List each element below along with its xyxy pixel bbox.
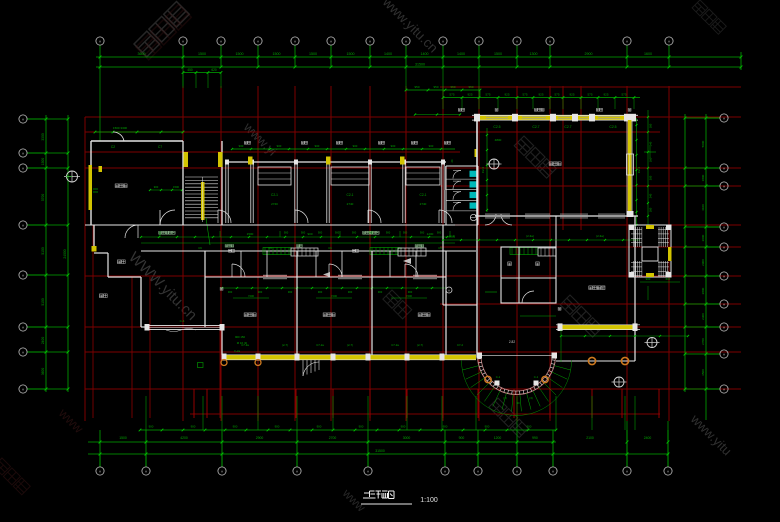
svg-text:C2: C2 xyxy=(111,145,115,149)
svg-text:600: 600 xyxy=(666,277,671,281)
svg-text:C-4: C-4 xyxy=(180,319,185,323)
svg-text:950: 950 xyxy=(468,85,473,89)
svg-text:C7-2: C7-2 xyxy=(457,343,464,347)
svg-text:900: 900 xyxy=(369,231,374,235)
svg-text:300: 300 xyxy=(649,175,653,180)
svg-text:900: 900 xyxy=(646,277,651,281)
svg-text:31500: 31500 xyxy=(415,63,425,67)
svg-text:2400: 2400 xyxy=(644,436,652,440)
svg-text:575: 575 xyxy=(522,93,527,97)
svg-text:1500: 1500 xyxy=(494,52,502,56)
svg-text:1500: 1500 xyxy=(119,436,127,440)
svg-text:A: A xyxy=(448,289,450,293)
svg-text:900: 900 xyxy=(408,290,413,294)
svg-text:1500: 1500 xyxy=(247,232,254,236)
svg-text:(3): (3) xyxy=(529,396,532,400)
svg-text:240: 240 xyxy=(649,141,653,146)
svg-text:900: 900 xyxy=(403,231,408,235)
svg-text:900: 900 xyxy=(527,425,532,429)
svg-text:1500: 1500 xyxy=(273,52,281,56)
svg-text:2700: 2700 xyxy=(701,338,705,345)
svg-text:(2-7): (2-7) xyxy=(347,343,353,347)
svg-text:900: 900 xyxy=(386,231,391,235)
svg-text:900: 900 xyxy=(401,425,406,429)
svg-text:1500: 1500 xyxy=(41,158,45,166)
svg-text:(2-3a): (2-3a) xyxy=(526,234,534,238)
svg-text:C2.6: C2.6 xyxy=(637,167,641,174)
svg-text:C2-1: C2-1 xyxy=(271,193,278,197)
svg-text:2400: 2400 xyxy=(41,337,45,345)
svg-text:1800: 1800 xyxy=(701,174,705,181)
svg-text:2700: 2700 xyxy=(329,436,337,440)
svg-text:160: 160 xyxy=(649,157,653,162)
svg-text:2740: 2740 xyxy=(420,202,427,206)
svg-text:C-2a: C-2a xyxy=(234,349,241,353)
svg-text:575: 575 xyxy=(587,93,592,97)
svg-text:925: 925 xyxy=(504,93,509,97)
svg-text:900: 900 xyxy=(348,290,353,294)
svg-text:925: 925 xyxy=(569,93,574,97)
svg-text:C6: C6 xyxy=(328,246,332,250)
svg-text:1400: 1400 xyxy=(384,52,392,56)
svg-text:3000: 3000 xyxy=(403,436,411,440)
svg-text:900: 900 xyxy=(301,231,306,235)
svg-text:925: 925 xyxy=(538,93,543,97)
svg-text:2000: 2000 xyxy=(701,234,705,241)
svg-text:7200: 7200 xyxy=(406,294,412,298)
svg-text:900: 900 xyxy=(378,290,383,294)
svg-text:C7-2a: C7-2a xyxy=(316,343,324,347)
svg-text:1600: 1600 xyxy=(644,52,652,56)
svg-text:C2-1: C2-1 xyxy=(347,193,354,197)
svg-text:900: 900 xyxy=(335,231,340,235)
svg-text:900: 900 xyxy=(318,290,323,294)
svg-text:1200: 1200 xyxy=(427,232,434,236)
svg-text:925: 925 xyxy=(467,93,472,97)
svg-text:2900: 2900 xyxy=(585,52,593,56)
svg-text:C2.5: C2.5 xyxy=(609,125,616,129)
svg-text:1400: 1400 xyxy=(421,52,429,56)
svg-text:900: 900 xyxy=(353,144,358,148)
svg-text:90: 90 xyxy=(516,401,520,405)
svg-text:575: 575 xyxy=(621,93,626,97)
svg-text:575: 575 xyxy=(554,93,559,97)
svg-text:900: 900 xyxy=(277,144,282,148)
svg-text:1500 3300: 1500 3300 xyxy=(113,126,128,130)
svg-text:4100: 4100 xyxy=(701,204,705,211)
svg-text:2900: 2900 xyxy=(701,259,705,266)
svg-text:5700: 5700 xyxy=(41,194,45,202)
svg-text:620: 620 xyxy=(211,68,217,72)
svg-text:5000: 5000 xyxy=(701,140,705,147)
svg-text:C7: C7 xyxy=(158,145,162,149)
svg-text:900: 900 xyxy=(359,425,364,429)
svg-text:900: 900 xyxy=(191,425,196,429)
svg-text:1500: 1500 xyxy=(198,52,206,56)
svg-text:990: 990 xyxy=(532,436,538,440)
svg-text:950: 950 xyxy=(450,85,455,89)
svg-text:3600: 3600 xyxy=(138,52,146,56)
svg-text:4800: 4800 xyxy=(495,138,502,142)
svg-text:C7-2a: C7-2a xyxy=(391,343,399,347)
svg-text:31500: 31500 xyxy=(375,449,385,453)
svg-text:900: 900 xyxy=(284,231,289,235)
svg-text:450: 450 xyxy=(187,68,193,72)
svg-text:C2.7: C2.7 xyxy=(564,125,571,129)
svg-text:3300: 3300 xyxy=(41,133,45,141)
svg-text:2740: 2740 xyxy=(271,202,278,206)
svg-text:C2-1: C2-1 xyxy=(420,193,427,197)
svg-text:C6: C6 xyxy=(198,246,202,250)
svg-text:1:100: 1:100 xyxy=(420,497,438,504)
svg-text:7200: 7200 xyxy=(248,294,254,298)
svg-text:160: 160 xyxy=(649,207,653,212)
svg-text:575: 575 xyxy=(485,93,490,97)
svg-text:2300: 2300 xyxy=(701,313,705,320)
svg-text:2100: 2100 xyxy=(586,436,594,440)
svg-text:3600: 3600 xyxy=(41,368,45,376)
svg-text:900: 900 xyxy=(437,231,442,235)
svg-text:575: 575 xyxy=(449,93,454,97)
svg-text:(2-3): (2-3) xyxy=(449,234,455,238)
svg-text:4200: 4200 xyxy=(180,436,188,440)
svg-text:900: 900 xyxy=(228,290,233,294)
svg-text:900: 900 xyxy=(459,436,465,440)
svg-text:1500: 1500 xyxy=(173,185,179,189)
svg-text:900: 900 xyxy=(275,425,280,429)
svg-text:C2.5: C2.5 xyxy=(493,125,500,129)
svg-text:C6: C6 xyxy=(438,246,442,250)
svg-text:950: 950 xyxy=(414,85,419,89)
svg-text:900: 900 xyxy=(317,425,322,429)
svg-text:900: 900 xyxy=(318,231,323,235)
svg-text:24000: 24000 xyxy=(63,249,67,258)
svg-text:C-1: C-1 xyxy=(496,375,501,379)
svg-text:5100: 5100 xyxy=(41,298,45,306)
svg-text:1500: 1500 xyxy=(236,52,244,56)
svg-text:1500: 1500 xyxy=(309,52,317,56)
svg-text:900: 900 xyxy=(239,144,244,148)
svg-text:240: 240 xyxy=(649,193,653,198)
svg-text:2740: 2740 xyxy=(347,202,354,206)
svg-text:900: 900 xyxy=(233,425,238,429)
svg-text:160: 160 xyxy=(649,123,653,128)
svg-text:900: 900 xyxy=(288,290,293,294)
svg-text:900 150: 900 150 xyxy=(235,335,246,339)
svg-text:1300: 1300 xyxy=(530,52,538,56)
svg-text:1400: 1400 xyxy=(457,52,465,56)
svg-text:900: 900 xyxy=(420,231,425,235)
svg-text:(3): (3) xyxy=(503,396,506,400)
svg-text:950: 950 xyxy=(433,85,438,89)
svg-text:900: 900 xyxy=(315,144,320,148)
svg-text:C2.7: C2.7 xyxy=(532,125,539,129)
svg-text:5100: 5100 xyxy=(41,247,45,255)
svg-text:900: 900 xyxy=(352,231,357,235)
svg-text:900: 900 xyxy=(258,290,263,294)
svg-text:925: 925 xyxy=(603,93,608,97)
svg-text:(2-3a): (2-3a) xyxy=(596,234,604,238)
svg-text:2800: 2800 xyxy=(701,287,705,294)
svg-text:C7-2a: C7-2a xyxy=(241,343,249,347)
svg-text:900: 900 xyxy=(391,144,396,148)
svg-text:900: 900 xyxy=(443,425,448,429)
svg-text:3500: 3500 xyxy=(701,369,705,376)
svg-text:1500: 1500 xyxy=(347,52,355,56)
svg-text:C2.6: C2.6 xyxy=(481,167,485,174)
svg-text:2900: 2900 xyxy=(256,436,264,440)
svg-text:1200: 1200 xyxy=(494,436,502,440)
svg-text:900: 900 xyxy=(485,425,490,429)
svg-text:900: 900 xyxy=(429,144,434,148)
svg-text:900: 900 xyxy=(154,185,159,189)
svg-text:(2-7): (2-7) xyxy=(282,343,288,347)
svg-text:900: 900 xyxy=(307,232,312,236)
svg-text:2.82: 2.82 xyxy=(509,340,515,344)
svg-text:C-1: C-1 xyxy=(534,375,539,379)
svg-text:7200: 7200 xyxy=(331,294,337,298)
svg-text:(2-7): (2-7) xyxy=(417,343,423,347)
svg-text:900: 900 xyxy=(149,425,154,429)
